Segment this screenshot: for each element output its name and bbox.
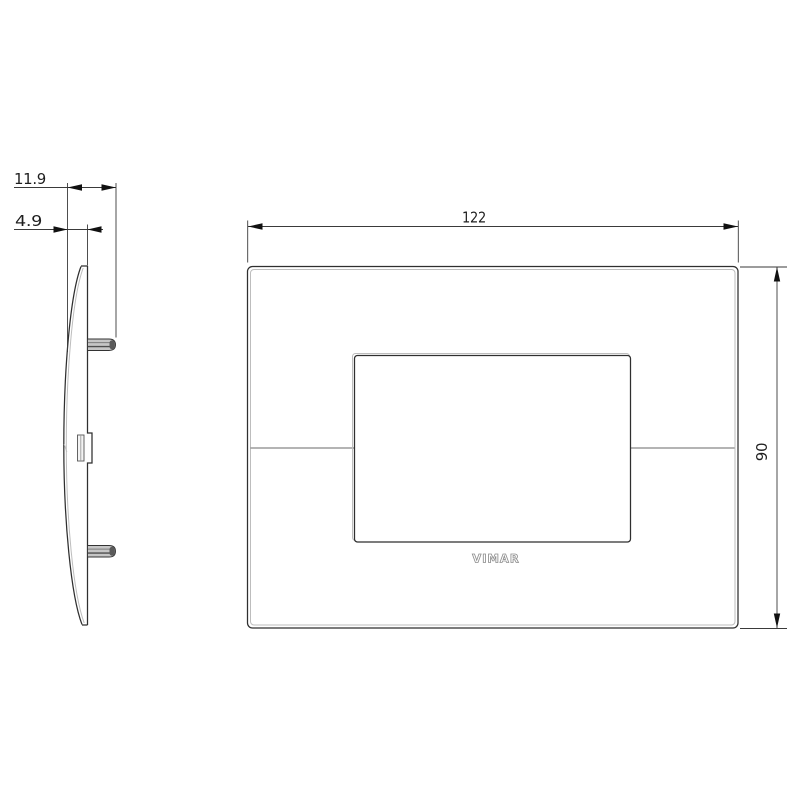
mounting-clip-top	[88, 339, 116, 351]
dimension-label-height: 90	[753, 443, 771, 462]
center-button-opening	[355, 356, 631, 543]
arrowhead	[68, 184, 83, 190]
brand-logo-text: VIMAR	[472, 552, 519, 566]
drawing-canvas: 11.9 4.9 VIMAR 122	[0, 0, 800, 800]
arrowhead	[54, 226, 68, 232]
clip-tip-top	[110, 340, 115, 349]
side-view: 11.9 4.9	[14, 170, 116, 625]
side-profile-back-edge	[88, 266, 93, 625]
dimension-depth-plate: 4.9	[14, 212, 103, 266]
arrowhead	[774, 267, 780, 282]
dimension-width: 122	[248, 209, 739, 263]
clip-tip-bottom	[110, 547, 115, 556]
center-boss	[78, 435, 85, 461]
dimension-depth-total: 11.9	[14, 170, 116, 352]
mounting-clip-bottom	[88, 546, 116, 558]
arrowhead	[88, 226, 102, 232]
arrowhead	[774, 614, 780, 629]
dimension-label-depth-total: 11.9	[14, 170, 46, 188]
dimension-height: 90	[740, 267, 787, 629]
plate-technical-drawing: 11.9 4.9 VIMAR 122	[0, 0, 800, 800]
front-view: VIMAR 122 90	[248, 209, 788, 629]
arrowhead	[724, 223, 739, 229]
arrowhead	[248, 223, 263, 229]
dimension-label-depth-plate: 4.9	[15, 212, 42, 230]
arrowhead	[102, 184, 117, 190]
dimension-label-width: 122	[462, 209, 486, 227]
